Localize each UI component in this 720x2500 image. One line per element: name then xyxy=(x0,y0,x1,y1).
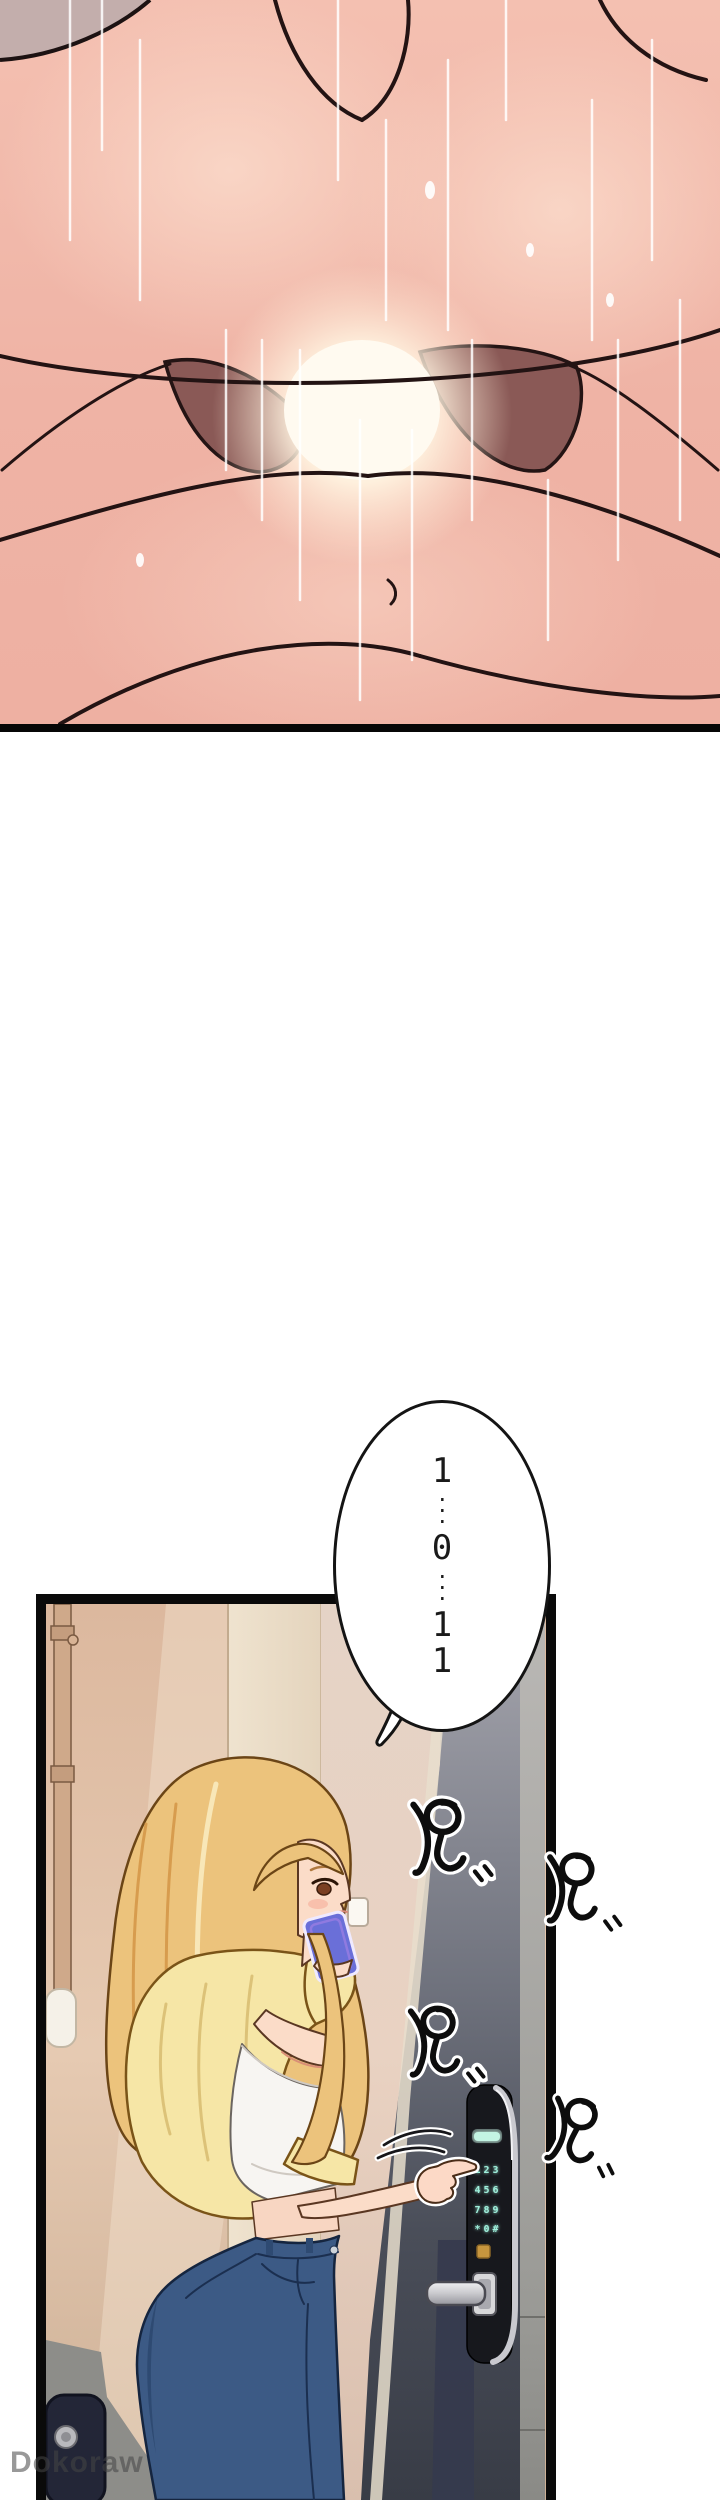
sfx-pi-icon xyxy=(398,1782,497,1903)
sfx-pi-icon xyxy=(397,1990,489,2102)
door-jamb xyxy=(520,1604,545,2500)
speech-bubble: 1 ··· 0 ··· 1 1 xyxy=(333,1400,551,1732)
lock-display xyxy=(474,2132,500,2141)
bubble-ellipsis: ··· xyxy=(439,1495,446,1528)
watermark: Dokoraw xyxy=(10,2446,144,2480)
keypad-row-4: *0# xyxy=(474,2224,501,2235)
bubble-digit: 1 xyxy=(432,1643,452,1679)
eye xyxy=(317,1883,331,1895)
keypad-row-3: 789 xyxy=(474,2205,501,2216)
light-switch xyxy=(348,1898,368,1926)
sfx-pi-icon xyxy=(536,1837,625,1948)
door-handle xyxy=(427,2282,485,2305)
bubble-ellipsis: ··· xyxy=(439,1572,446,1605)
sfx-pi-icon xyxy=(537,2086,624,2188)
top-artwork xyxy=(0,0,720,724)
lock-key-cover xyxy=(477,2245,490,2258)
bubble-digit: 1 xyxy=(432,1607,452,1643)
bubble-digit: 0 xyxy=(432,1530,452,1566)
bubble-digit: 1 xyxy=(432,1453,452,1489)
top-artwork-panel xyxy=(0,0,720,732)
keypad-row-2: 456 xyxy=(474,2185,501,2196)
comic-page: 123 456 789 *0# xyxy=(0,0,720,2500)
